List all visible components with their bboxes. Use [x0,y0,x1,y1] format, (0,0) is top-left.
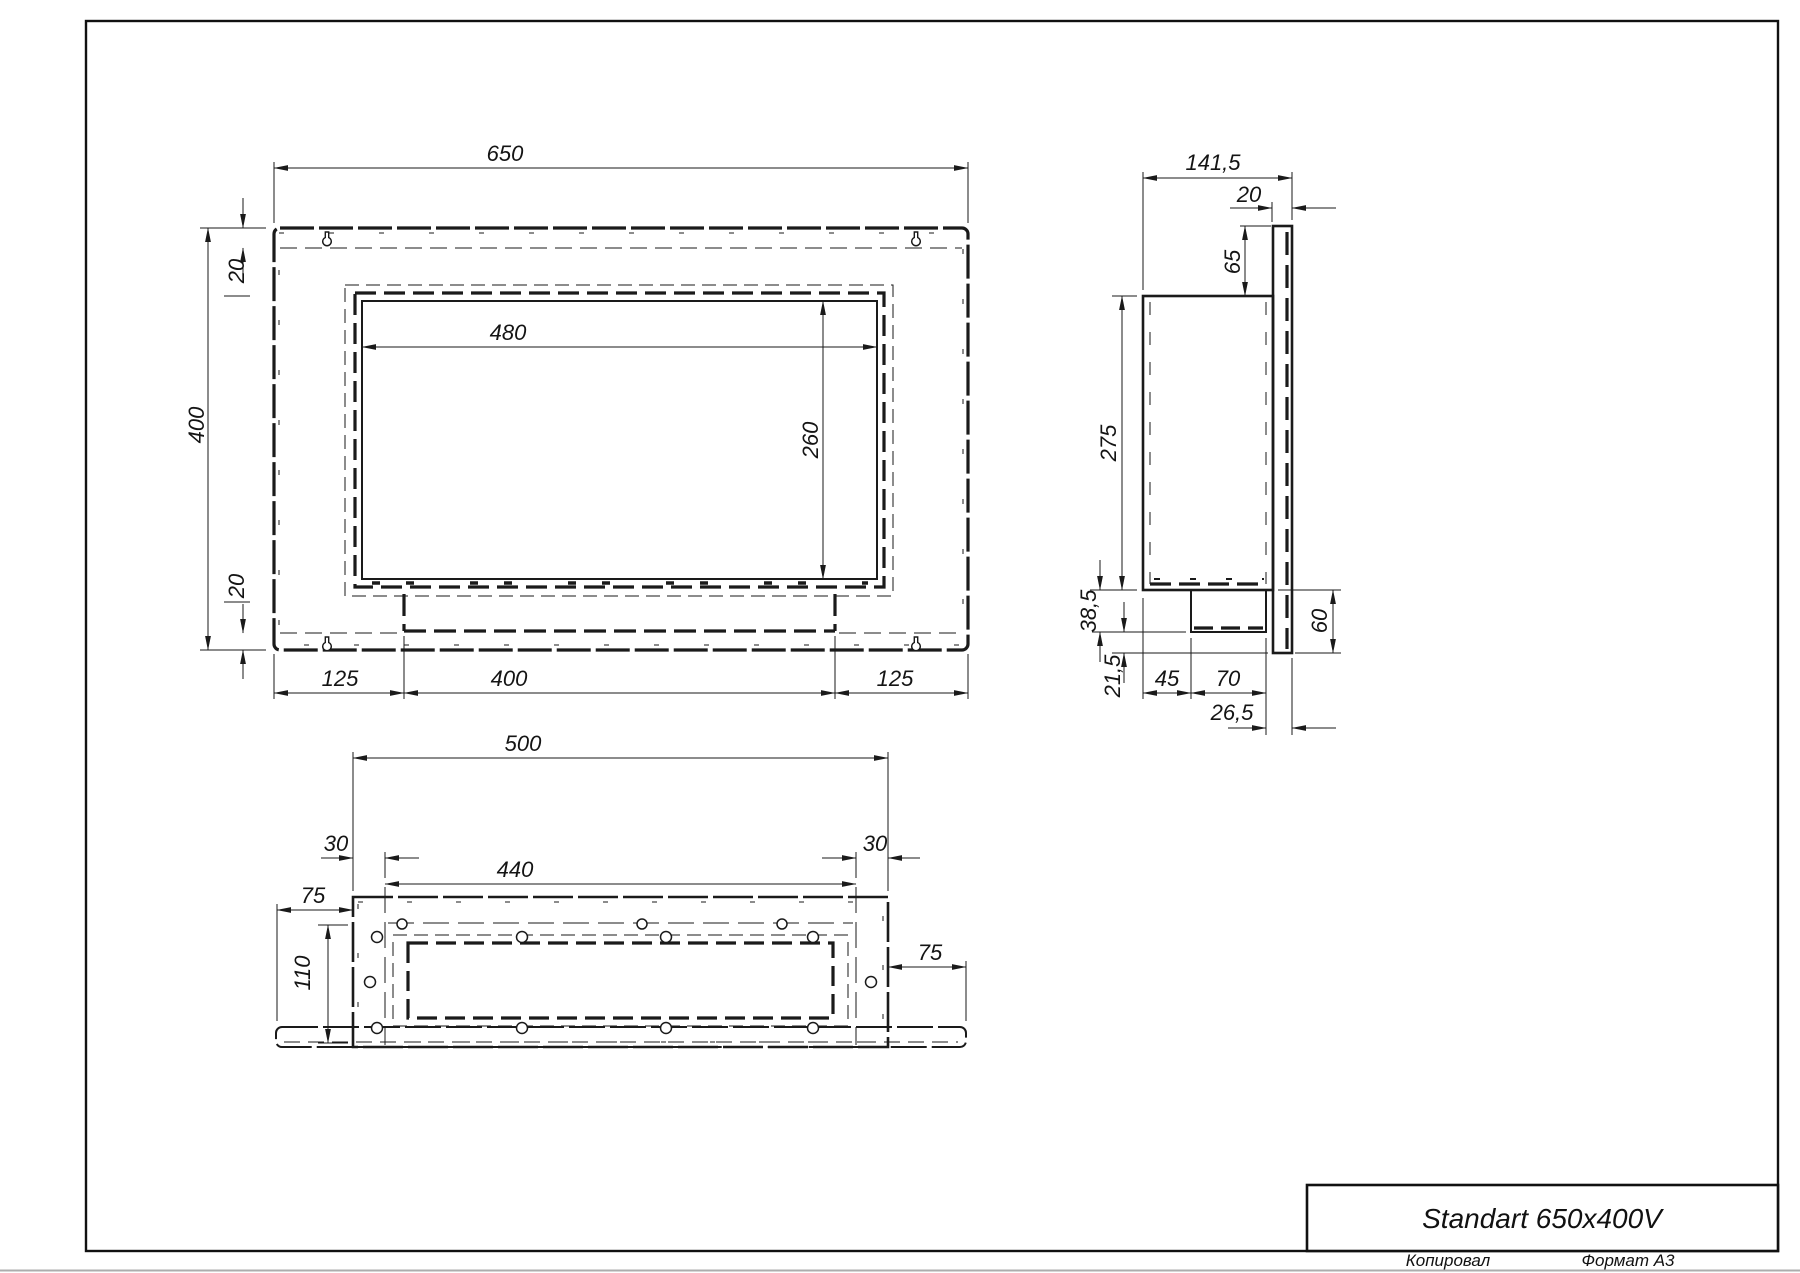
drawing-sheet: 650 400 20 20 480 260 12 [0,0,1800,1273]
dim-flange-below-tray: 21,5 [1100,654,1125,699]
dim-bottom-opening-width: 440 [497,857,534,882]
keyhole-slot-icon [912,232,921,246]
dim-tray-offset: 45 [1155,666,1180,691]
front-dimensions: 650 400 20 20 480 260 12 [184,141,968,699]
dim-right-inset: 30 [863,831,888,856]
format-label: Формат А3 [1581,1251,1675,1270]
dim-front-width: 650 [487,141,524,166]
dim-bottom-depth: 110 [290,955,315,991]
bottom-dimensions: 500 30 30 440 110 75 75 [277,731,966,1043]
keyhole-slot-icon [912,637,921,651]
front-outline [274,228,968,650]
keyhole-slot-icon [323,637,332,651]
dim-front-height: 400 [184,406,209,443]
dim-bottom-right: 125 [877,666,914,691]
dim-front-bottom-margin: 20 [224,573,249,599]
dim-flange-thickness: 20 [1236,182,1262,207]
dim-left-inset: 30 [324,831,349,856]
dim-bottom-left: 125 [322,666,359,691]
dim-flange-above-top: 65 [1220,249,1245,274]
bottom-view: 500 30 30 440 110 75 75 [276,731,966,1047]
dim-front-top-margin: 20 [224,258,249,284]
dim-body-height: 275 [1096,424,1121,462]
side-dimensions: 141,5 20 65 275 38,5 21,5 [1076,150,1341,735]
engineering-drawing: 650 400 20 20 480 260 12 [0,0,1800,1273]
dim-flange-left-overhang: 75 [301,883,326,908]
dim-bottom-body-width: 500 [505,731,542,756]
bottom-outline [276,852,966,1047]
dim-flange-below-body: 60 [1307,608,1332,633]
fastener-holes [365,919,877,1034]
page-frame [0,21,1800,1271]
dim-opening-width: 480 [490,320,527,345]
side-view: 141,5 20 65 275 38,5 21,5 [1076,150,1341,735]
side-outline [1143,226,1292,653]
copied-label: Копировал [1406,1251,1491,1270]
dim-flange-right-overhang: 75 [918,940,943,965]
dim-bottom-center: 400 [491,666,528,691]
dim-tray-drop: 38,5 [1076,589,1101,633]
dim-side-depth: 141,5 [1185,150,1241,175]
dim-tray-to-back: 26,5 [1210,700,1255,725]
dim-opening-height: 260 [798,421,823,459]
front-view: 650 400 20 20 480 260 12 [184,141,968,699]
title-block: Standart 650x400V Копировал Формат А3 [1307,1185,1778,1270]
keyhole-slot-icon [323,232,332,246]
drawing-title: Standart 650x400V [1422,1203,1664,1234]
dim-tray-width: 70 [1216,666,1241,691]
